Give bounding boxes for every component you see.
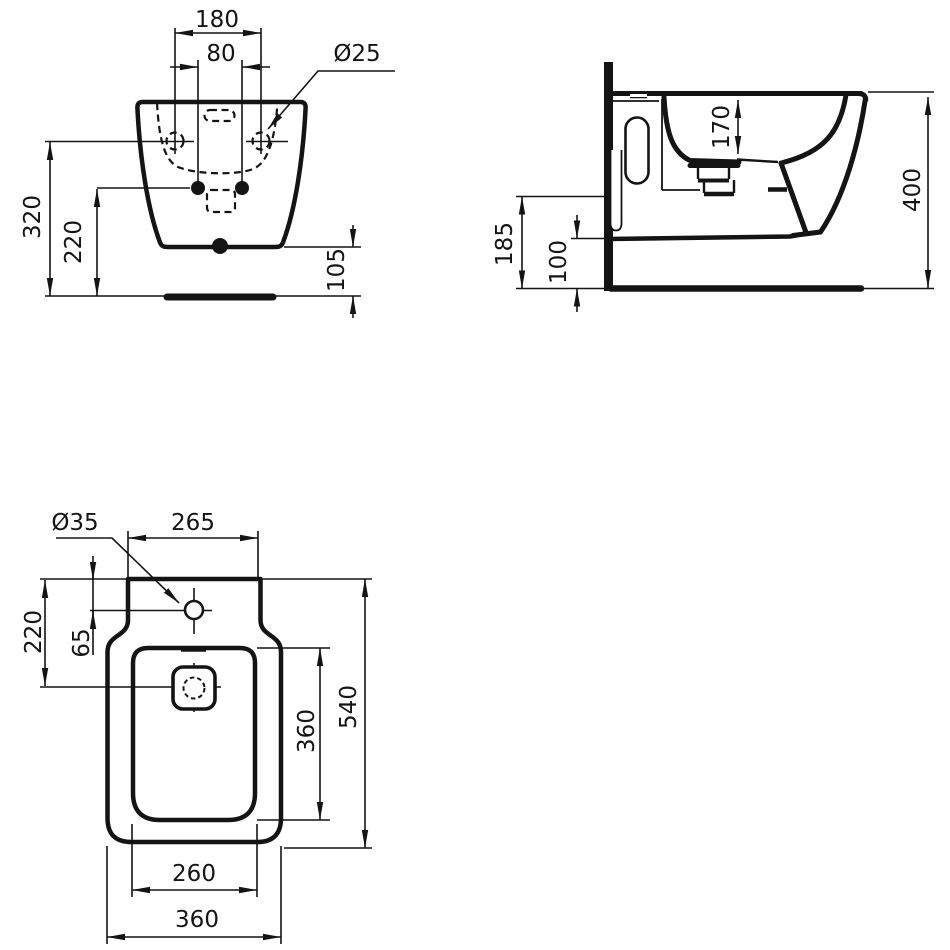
leader-line-35 (56, 538, 179, 603)
drawing-svg: 180 80 Ø25 320 220 105 (0, 0, 950, 950)
outlet-dot (212, 238, 228, 254)
dim-plan-drain-distance: 220 (21, 610, 47, 654)
dim-side-overall-height: 400 (900, 168, 926, 212)
dim-front-underside-height: 105 (324, 248, 350, 292)
dim-front-height-fixing: 320 (20, 195, 46, 239)
plan-view: Ø35 265 220 65 360 540 260 360 (21, 510, 372, 944)
tap-slot-notch (630, 94, 647, 97)
technical-drawing: 180 80 Ø25 320 220 105 (0, 0, 950, 950)
inlet-left (191, 181, 205, 195)
side-view: 170 400 185 100 (492, 62, 934, 312)
drain-hidden (207, 190, 235, 212)
dim-plan-bowl-width: 260 (172, 861, 216, 887)
dim-plan-back-width: 265 (171, 510, 215, 536)
drain-trap (690, 165, 787, 194)
fixing-slot (626, 118, 649, 184)
side-outer-edge (821, 98, 866, 232)
side-inner-underside (781, 163, 806, 233)
bowl-right-wall (783, 95, 846, 163)
supply-pipe (611, 150, 622, 231)
dim-plan-overall-length: 540 (336, 685, 362, 729)
side-underside (608, 234, 806, 240)
tap-hole (185, 601, 203, 619)
dim-plan-bowl-length: 360 (294, 709, 320, 753)
inlet-right (235, 181, 249, 195)
dim-front-fixing-distance: 180 (195, 7, 239, 33)
dim-side-basin-depth: 170 (709, 105, 735, 149)
front-view: 180 80 Ø25 320 220 105 (20, 7, 395, 318)
dim-front-hole-diameter: Ø25 (333, 41, 380, 67)
dim-plan-overall-width: 360 (175, 907, 219, 933)
dim-plan-tap-hole: Ø35 (51, 510, 98, 536)
drain-recess (173, 667, 215, 709)
dim-side-underside-gap: 100 (546, 240, 572, 284)
dim-front-inlet-distance: 80 (206, 41, 235, 67)
bowl-bottom-far (737, 160, 778, 163)
dim-side-front-clearance: 185 (492, 222, 518, 266)
tap-slot-hidden (205, 110, 235, 121)
dim-front-height-inlet: 220 (61, 220, 87, 264)
dim-plan-tap-offset: 65 (69, 628, 95, 657)
front-view-outline (137, 102, 305, 247)
